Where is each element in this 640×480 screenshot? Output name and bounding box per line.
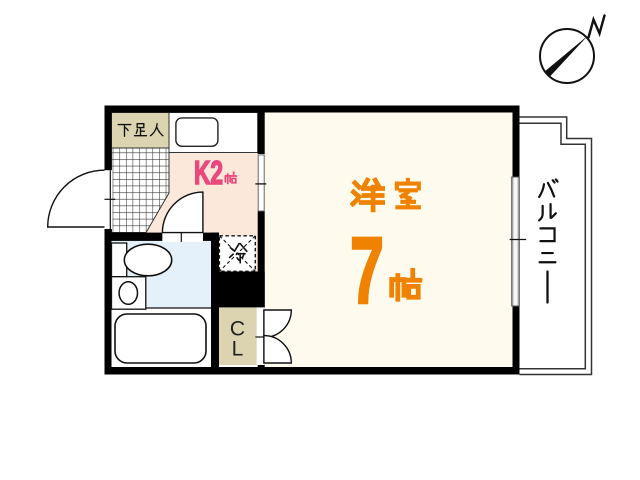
svg-text:K2: K2 <box>194 155 223 192</box>
svg-text:7: 7 <box>350 218 384 324</box>
svg-text:L: L <box>232 338 244 361</box>
